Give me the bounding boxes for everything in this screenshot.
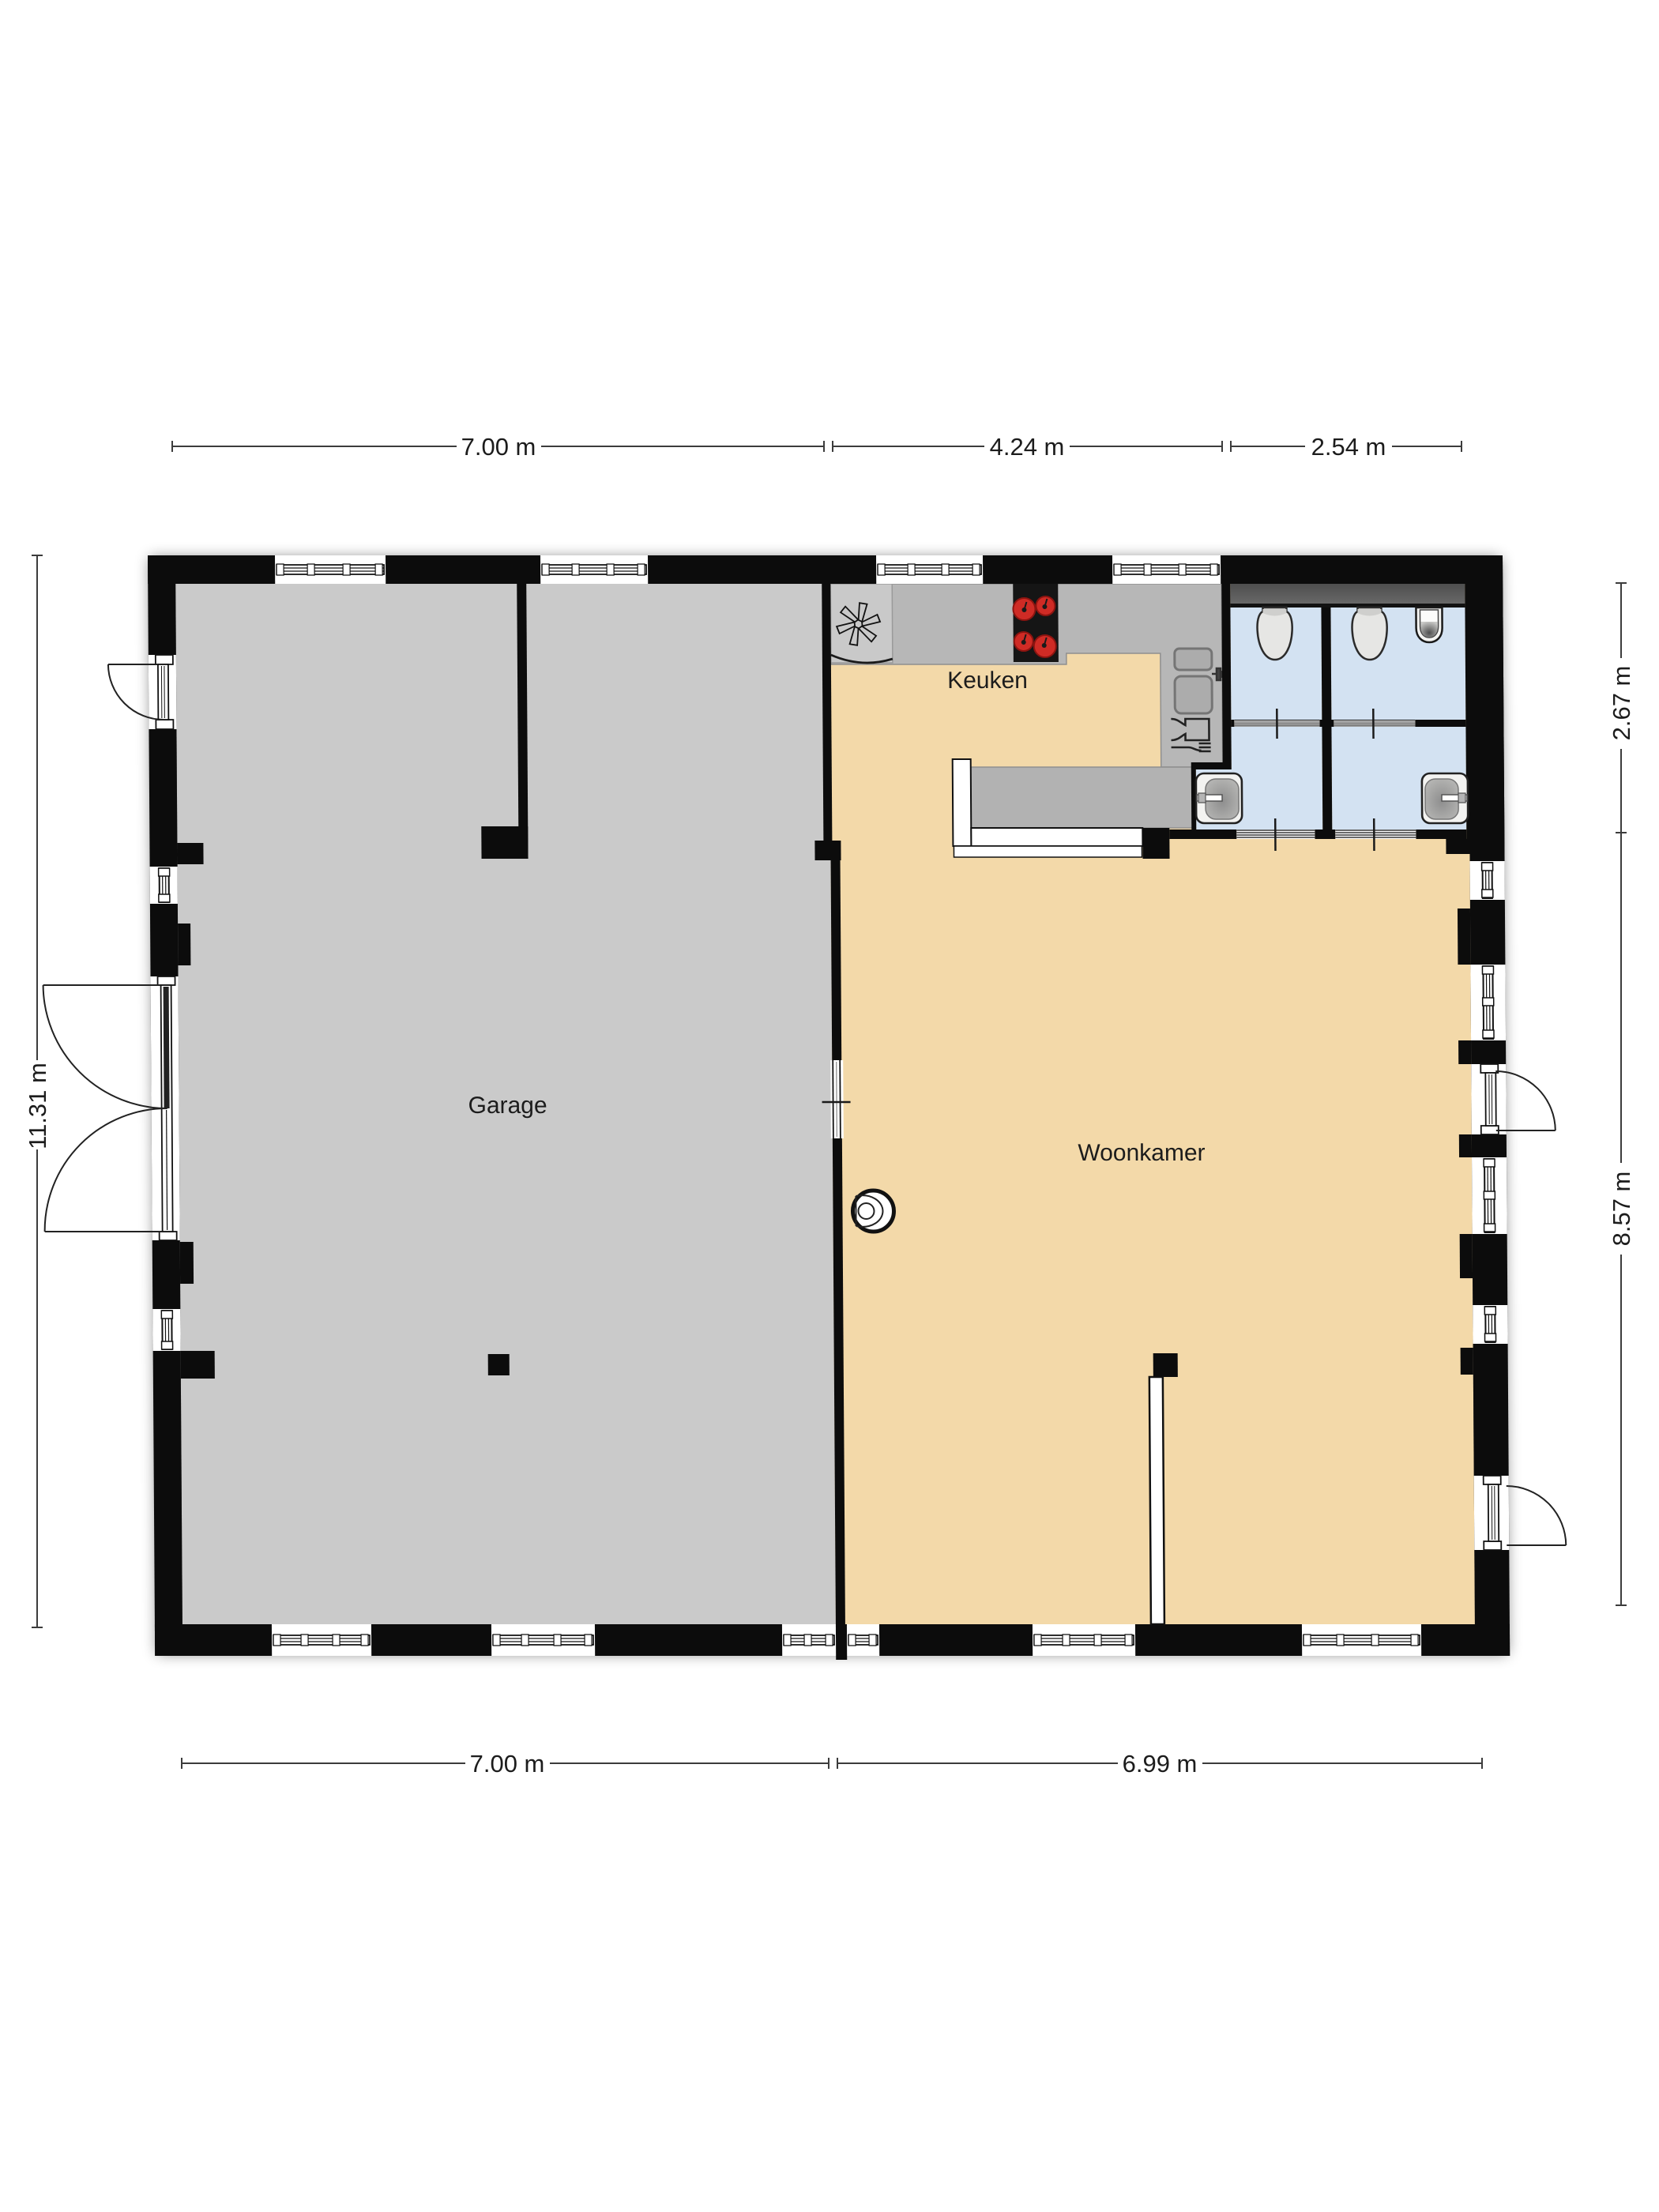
svg-text:7.00 m: 7.00 m [461, 433, 536, 461]
svg-text:Keuken: Keuken [947, 668, 1028, 694]
svg-text:6.99 m: 6.99 m [1123, 1750, 1198, 1777]
svg-text:2.54 m: 2.54 m [1311, 433, 1386, 461]
svg-text:7.00 m: 7.00 m [470, 1750, 545, 1777]
svg-text:11.31 m: 11.31 m [24, 1063, 51, 1149]
svg-text:Garage: Garage [468, 1093, 547, 1119]
svg-text:8.57 m: 8.57 m [1608, 1172, 1635, 1247]
svg-text:Woonkamer: Woonkamer [1078, 1140, 1205, 1166]
svg-text:4.24 m: 4.24 m [990, 433, 1065, 461]
svg-text:2.67 m: 2.67 m [1608, 666, 1635, 741]
